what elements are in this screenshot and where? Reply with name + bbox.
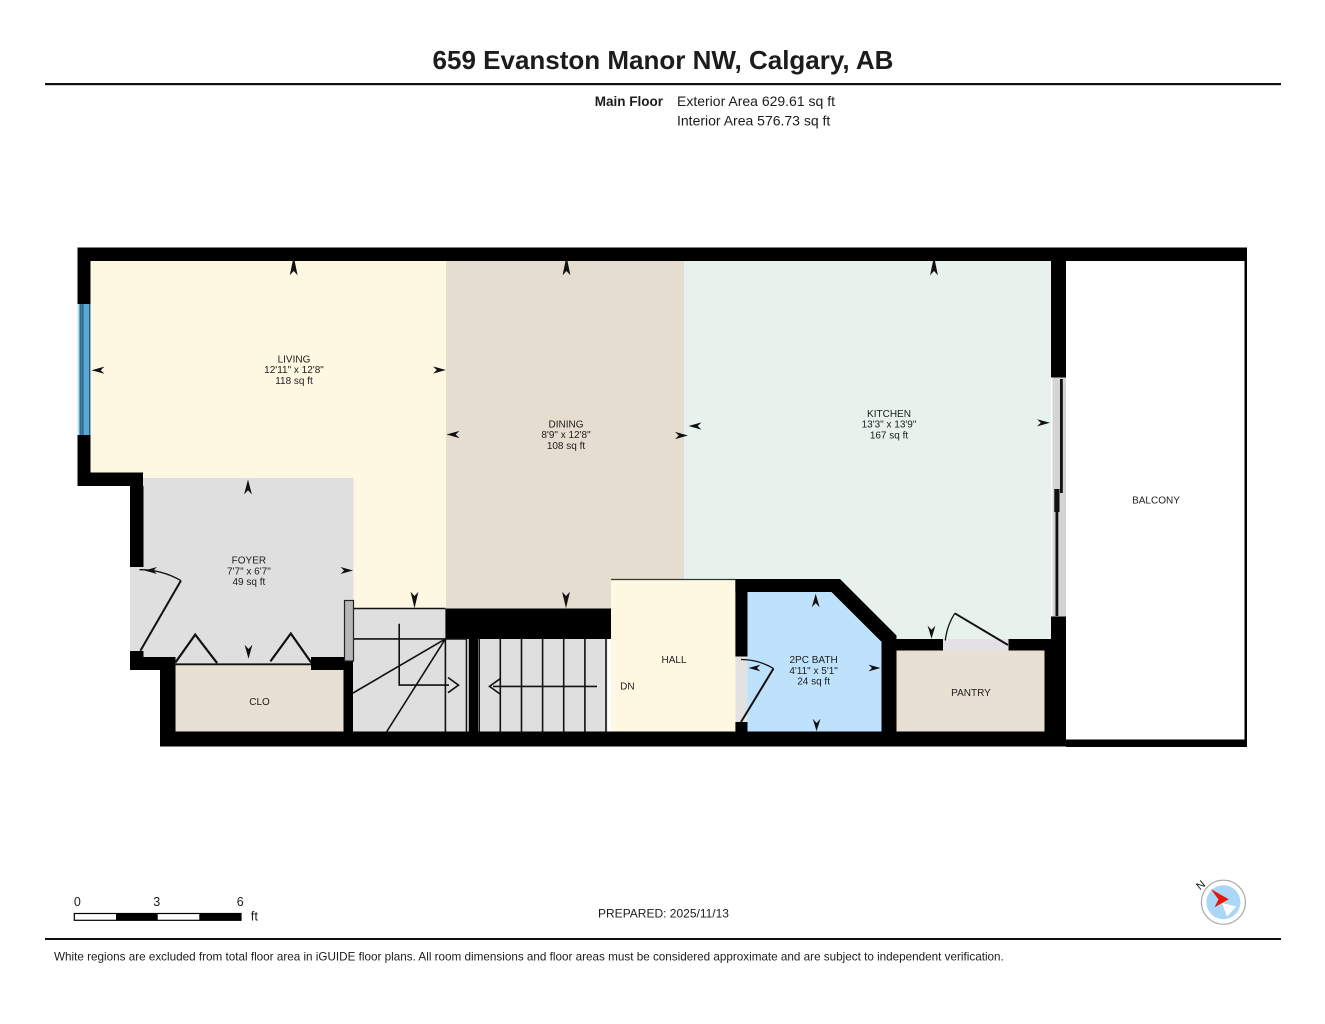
svg-text:BALCONY: BALCONY — [1132, 495, 1180, 506]
svg-text:13'3" x 13'9": 13'3" x 13'9" — [862, 420, 917, 431]
svg-text:4'11" x 5'1": 4'11" x 5'1" — [789, 666, 838, 677]
svg-text:12'11" x 12'8": 12'11" x 12'8" — [264, 365, 324, 376]
svg-text:Interior Area 576.73 sq ft: Interior Area 576.73 sq ft — [677, 113, 830, 129]
svg-text:6: 6 — [237, 895, 244, 909]
svg-text:White regions are excluded fro: White regions are excluded from total fl… — [54, 951, 1004, 964]
svg-text:108 sq ft: 108 sq ft — [547, 441, 586, 452]
svg-text:8'9" x 12'8": 8'9" x 12'8" — [541, 430, 591, 441]
svg-text:PANTRY: PANTRY — [951, 688, 991, 699]
svg-text:DINING: DINING — [549, 419, 584, 430]
svg-text:167 sq ft: 167 sq ft — [870, 430, 909, 441]
svg-text:DN: DN — [620, 681, 634, 692]
svg-text:24 sq ft: 24 sq ft — [797, 677, 830, 688]
svg-text:Exterior Area 629.61 sq ft: Exterior Area 629.61 sq ft — [677, 93, 835, 109]
svg-text:CLO: CLO — [249, 697, 270, 708]
svg-text:3: 3 — [153, 895, 160, 909]
svg-text:LIVING: LIVING — [278, 355, 311, 366]
svg-text:PREPARED: 2025/11/13: PREPARED: 2025/11/13 — [598, 906, 729, 920]
svg-text:0: 0 — [74, 895, 81, 909]
svg-text:2PC BATH: 2PC BATH — [790, 655, 838, 666]
svg-text:KITCHEN: KITCHEN — [867, 409, 911, 420]
svg-text:659 Evanston Manor NW, Calgary: 659 Evanston Manor NW, Calgary, AB — [433, 45, 894, 75]
svg-text:HALL: HALL — [661, 655, 686, 666]
svg-text:118 sq ft: 118 sq ft — [275, 376, 313, 387]
svg-text:49 sq ft: 49 sq ft — [232, 577, 265, 588]
svg-text:Main Floor: Main Floor — [595, 94, 664, 109]
svg-text:7'7" x 6'7": 7'7" x 6'7" — [227, 566, 271, 577]
svg-text:ft: ft — [251, 909, 259, 924]
svg-text:FOYER: FOYER — [232, 556, 266, 567]
